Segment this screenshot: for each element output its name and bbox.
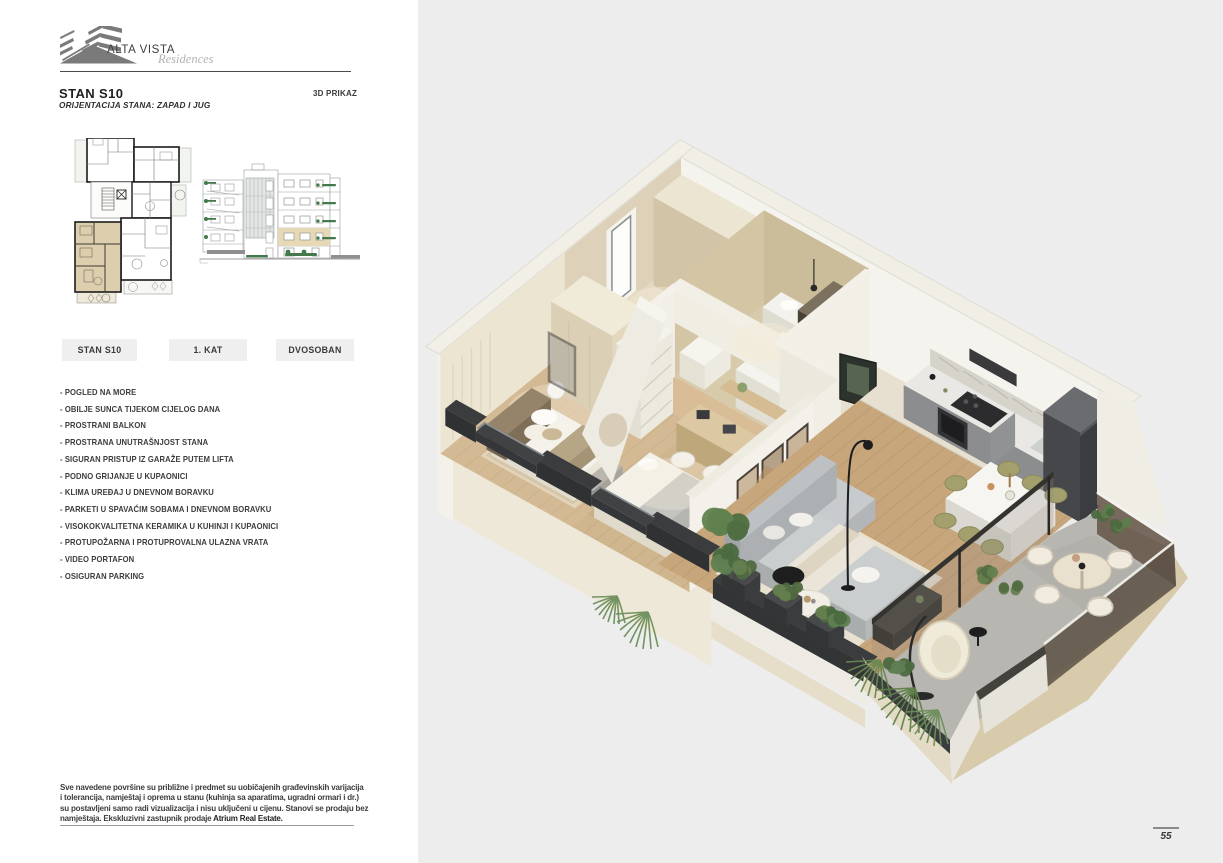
svg-text:Residences: Residences xyxy=(157,52,214,66)
